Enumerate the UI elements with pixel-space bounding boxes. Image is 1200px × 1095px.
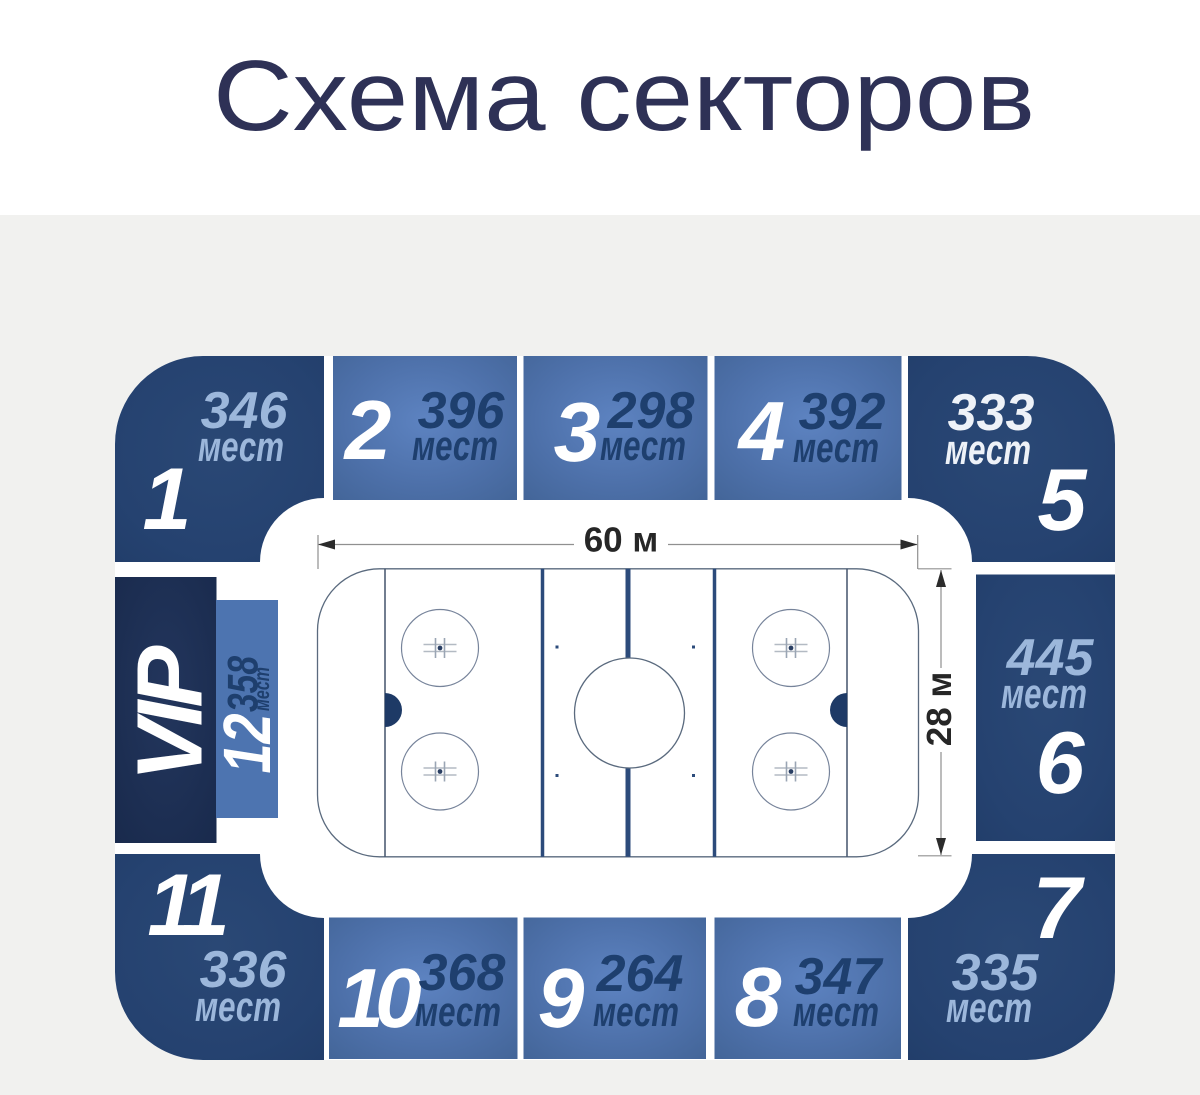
svg-text:мест: мест: [793, 424, 879, 471]
svg-text:4: 4: [737, 384, 786, 478]
svg-text:Схема секторов: Схема секторов: [213, 40, 1035, 152]
svg-text:1: 1: [143, 449, 192, 548]
svg-text:мест: мест: [593, 988, 679, 1035]
svg-text:8: 8: [735, 950, 782, 1044]
svg-text:мест: мест: [198, 423, 284, 470]
svg-text:мест: мест: [793, 988, 879, 1035]
svg-text:мест: мест: [945, 426, 1031, 473]
svg-text:11: 11: [147, 855, 225, 954]
svg-text:10: 10: [337, 951, 421, 1045]
svg-text:5: 5: [1038, 450, 1088, 549]
svg-text:12: 12: [210, 714, 285, 774]
svg-text:VIP: VIP: [118, 645, 222, 782]
svg-text:28 м: 28 м: [920, 672, 959, 747]
svg-text:мест: мест: [412, 422, 498, 469]
svg-text:6: 6: [1036, 713, 1086, 812]
svg-text:9: 9: [538, 951, 585, 1045]
svg-text:2: 2: [343, 383, 392, 477]
svg-text:мест: мест: [1001, 670, 1087, 717]
svg-text:мест: мест: [415, 988, 501, 1035]
svg-text:7: 7: [1033, 858, 1086, 957]
svg-text:мест: мест: [946, 984, 1032, 1031]
svg-text:мест: мест: [195, 983, 281, 1030]
svg-text:мест: мест: [600, 422, 686, 469]
svg-text:мест: мест: [249, 667, 274, 711]
svg-text:60 м: 60 м: [584, 521, 659, 560]
svg-text:3: 3: [554, 385, 601, 479]
